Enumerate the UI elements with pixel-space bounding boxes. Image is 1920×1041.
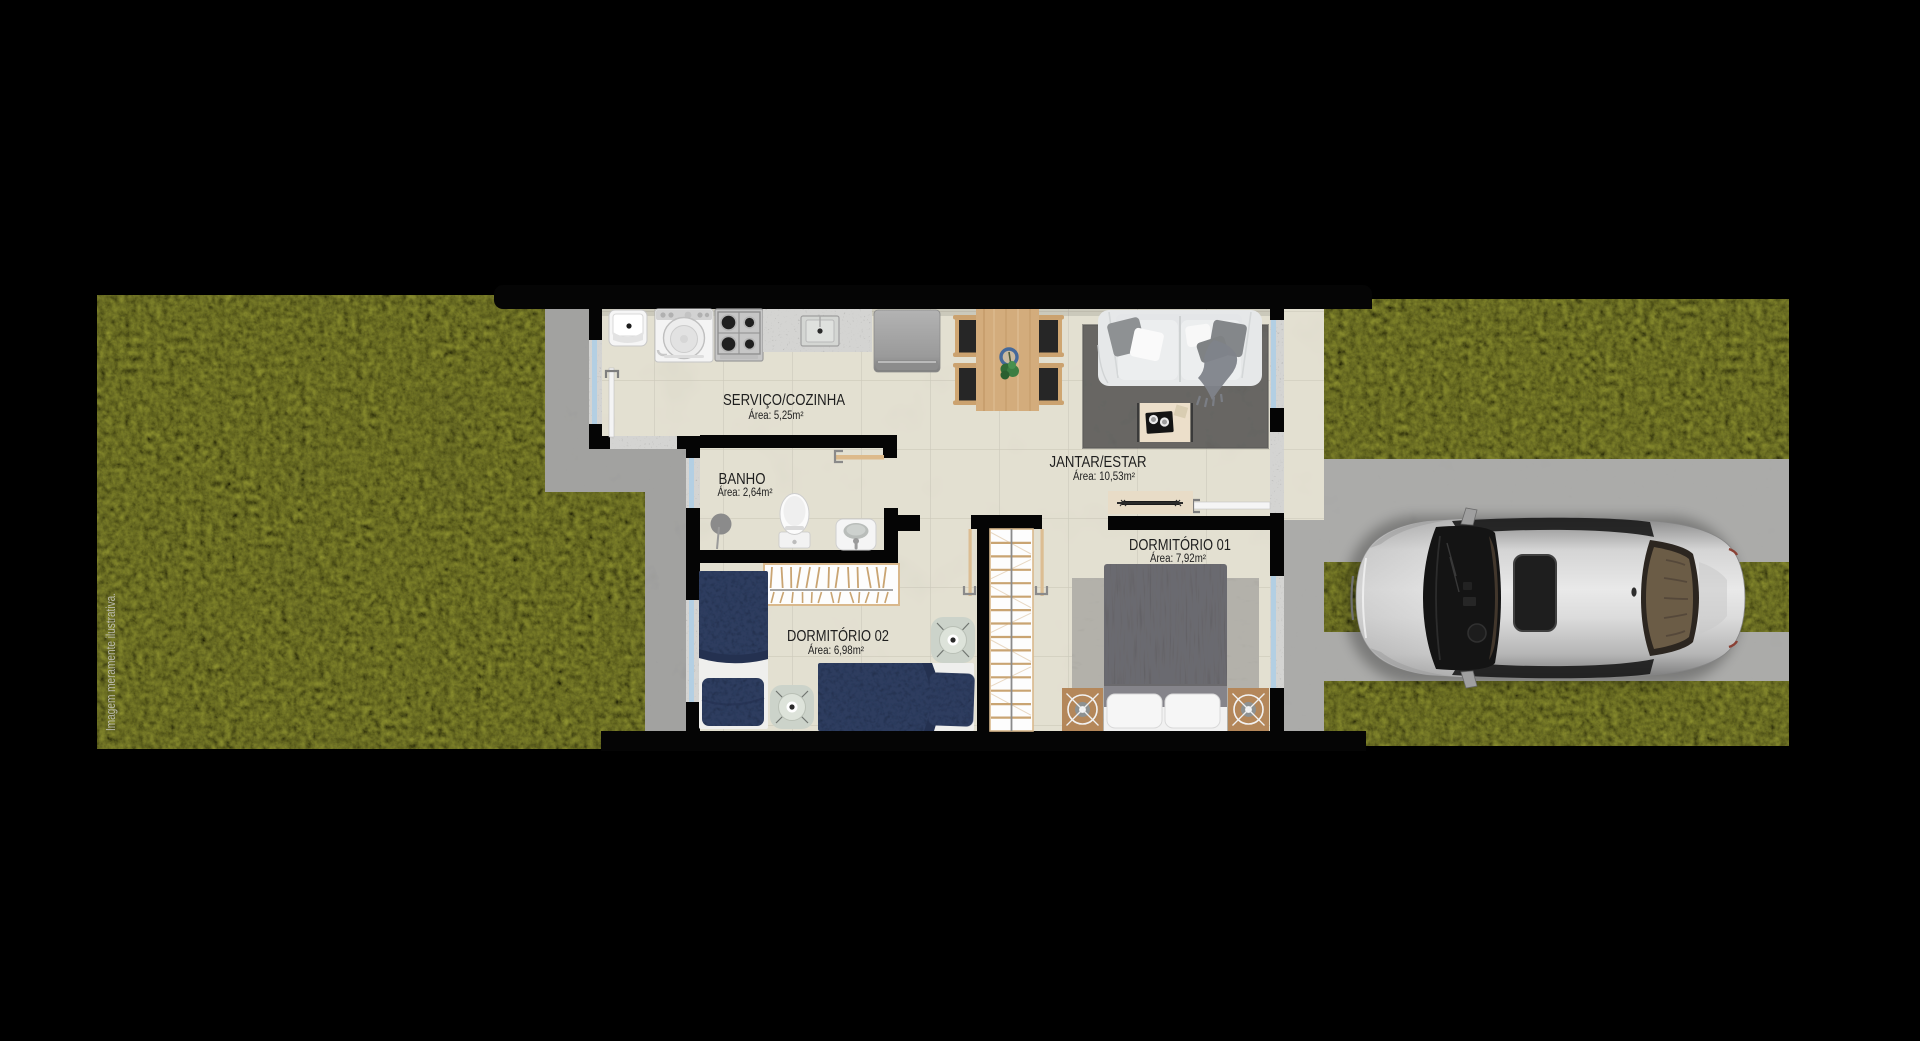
svg-text:Área: 6,98m²: Área: 6,98m² xyxy=(808,644,864,657)
svg-text:SERVIÇO/COZINHA: SERVIÇO/COZINHA xyxy=(723,392,846,409)
svg-text:Área: 10,53m²: Área: 10,53m² xyxy=(1073,470,1135,483)
svg-text:Imagem meramente ilustrativa.: Imagem meramente ilustrativa. xyxy=(103,593,118,731)
svg-text:DORMITÓRIO 01: DORMITÓRIO 01 xyxy=(1129,537,1231,554)
svg-text:Área: 7,92m²: Área: 7,92m² xyxy=(1150,552,1206,565)
svg-text:Área: 5,25m²: Área: 5,25m² xyxy=(749,409,804,422)
svg-text:DORMITÓRIO 02: DORMITÓRIO 02 xyxy=(787,628,889,645)
svg-text:JANTAR/ESTAR: JANTAR/ESTAR xyxy=(1050,454,1147,471)
svg-text:BANHO: BANHO xyxy=(719,471,766,488)
svg-text:Área: 2,64m²: Área: 2,64m² xyxy=(718,486,773,499)
